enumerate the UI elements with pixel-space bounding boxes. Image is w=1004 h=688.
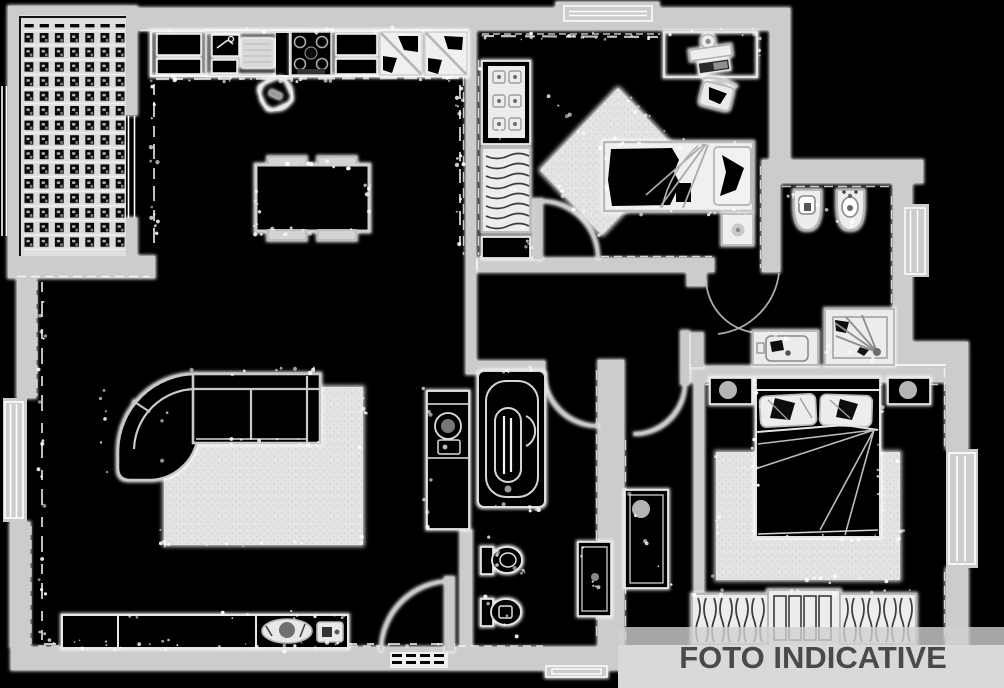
svg-text:FOTO INDICATIVE: FOTO INDICATIVE [679,640,947,675]
